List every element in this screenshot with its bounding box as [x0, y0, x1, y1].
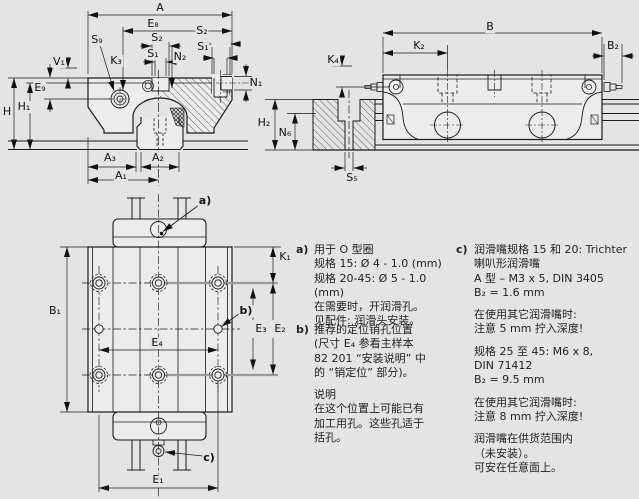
side-view	[265, 33, 639, 171]
dim-label-h2: H₂	[257, 117, 272, 129]
dim-label-s2-right: S₂	[195, 25, 208, 37]
dim-label-n6: N₆	[278, 127, 293, 139]
dim-label-a1: A₁	[114, 170, 128, 182]
note-a-line: 用于 O 型圈	[314, 243, 448, 257]
note-b-line: 推荐的定位销孔位置	[314, 323, 426, 337]
note-a-label: a)	[296, 243, 310, 329]
dim-label-k1: K₁	[278, 251, 292, 263]
dim-label-k2: K₂	[412, 40, 426, 52]
dim-label-e3: E₃	[254, 323, 267, 335]
note-a-line: 在需要时，开润滑孔。	[314, 300, 448, 314]
note-c-line: A 型 – M3 x 5, DIN 3405	[474, 272, 627, 286]
note-b-line: 82 201 “安装说明” 中	[314, 352, 426, 366]
note-c-label: c)	[456, 243, 470, 475]
note-c-line: DIN 71412	[474, 359, 627, 373]
dim-label-v1: V₁	[52, 56, 66, 68]
dim-label-k4: K₄	[326, 54, 340, 66]
callout-b: b)	[239, 305, 254, 317]
note-a: a) 用于 O 型圈 规格 15: Ø 4 - 1.0 (mm) 规格 20-4…	[296, 243, 448, 329]
note-c-line: 润滑嘴规格 15 和 20: Trichter	[474, 243, 627, 257]
dim-label-s1-right: S₁	[196, 41, 209, 53]
note-c-line: B₂ = 1.6 mm	[474, 286, 627, 300]
note-c-line: 喇叭形润滑嘴	[474, 257, 627, 271]
note-c-line: 注意 8 mm 拧入深度!	[474, 410, 627, 424]
note-c-line: （未安装）。	[474, 447, 627, 461]
note-c-line: 规格 25 至 45: M6 x 8,	[474, 345, 627, 359]
dim-label-a3: A₃	[103, 152, 117, 164]
dim-label-s9: S₉	[90, 34, 103, 46]
top-view	[60, 194, 281, 497]
note-b-text: 推荐的定位销孔位置 (尺寸 E₄ 参看主样本 82 201 “安装说明” 中 的…	[314, 323, 426, 445]
note-b-line: 加工用孔。这些孔适于	[314, 417, 426, 431]
dim-label-h1: H₁	[17, 101, 32, 113]
note-a-line: 规格 15: Ø 4 - 1.0 (mm)	[314, 257, 448, 271]
dim-label-e2: E₂	[273, 323, 286, 335]
dim-label-s5: S₅	[345, 172, 358, 184]
note-b-line: 说明	[314, 388, 426, 402]
dim-label-s2-top: S₂	[150, 32, 163, 44]
dim-label-e4: E₄	[150, 337, 163, 349]
callout-c: c)	[202, 452, 216, 464]
front-section-view	[8, 11, 252, 186]
note-b-line: 在这个位置上可能已有	[314, 402, 426, 416]
dim-label-s1-top: S₁	[146, 48, 159, 60]
note-c-line: 在使用其它润滑嘴时:	[474, 308, 627, 322]
dim-label-k3: K₃	[109, 55, 123, 67]
note-c-line: B₂ = 9.5 mm	[474, 373, 627, 387]
note-b-line: 的 “销定位” 部分)。	[314, 366, 426, 380]
dim-label-e9: E₉	[33, 82, 46, 94]
note-c-line: 在使用其它润滑嘴时:	[474, 396, 627, 410]
dim-label-e8: E₈	[146, 18, 159, 30]
dim-label-n2: N₂	[173, 51, 188, 63]
dim-label-b-length: B	[485, 21, 495, 33]
dim-label-b1: B₁	[48, 305, 62, 317]
note-a-line: 规格 20-45: Ø 5 - 1.0 (mm)	[314, 272, 448, 301]
note-c-text: 润滑嘴规格 15 和 20: Trichter 喇叭形润滑嘴 A 型 – M3 …	[474, 243, 627, 475]
note-b-label: b)	[296, 323, 310, 445]
dim-label-h: H	[2, 106, 12, 118]
note-c: c) 润滑嘴规格 15 和 20: Trichter 喇叭形润滑嘴 A 型 – …	[456, 243, 634, 475]
note-c-line: 可安在任意面上。	[474, 461, 627, 475]
dim-label-e1: E₁	[151, 474, 164, 486]
dim-label-n1: N₁	[249, 77, 264, 89]
note-b-line: 括孔。	[314, 431, 426, 445]
note-c-line: 注意 5 mm 拧入深度!	[474, 322, 627, 336]
note-b-line: (尺寸 E₄ 参看主样本	[314, 337, 426, 351]
note-a-text: 用于 O 型圈 规格 15: Ø 4 - 1.0 (mm) 规格 20-45: …	[314, 243, 448, 329]
dim-label-a2: A₂	[151, 152, 165, 164]
callout-a: a)	[198, 195, 212, 207]
dim-label-b2: B₂	[606, 40, 620, 52]
dim-label-a-width: A	[155, 2, 165, 14]
linear-guide-catalog-drawing: A E₈ S₂ S₁ N₂ S₉ K₃ V₁ E₉ H H₁ S₂ S₁ N₁ …	[0, 0, 639, 499]
note-b: b) 推荐的定位销孔位置 (尺寸 E₄ 参看主样本 82 201 “安装说明” …	[296, 323, 448, 445]
note-c-line: 润滑嘴在供货范围内	[474, 432, 627, 446]
